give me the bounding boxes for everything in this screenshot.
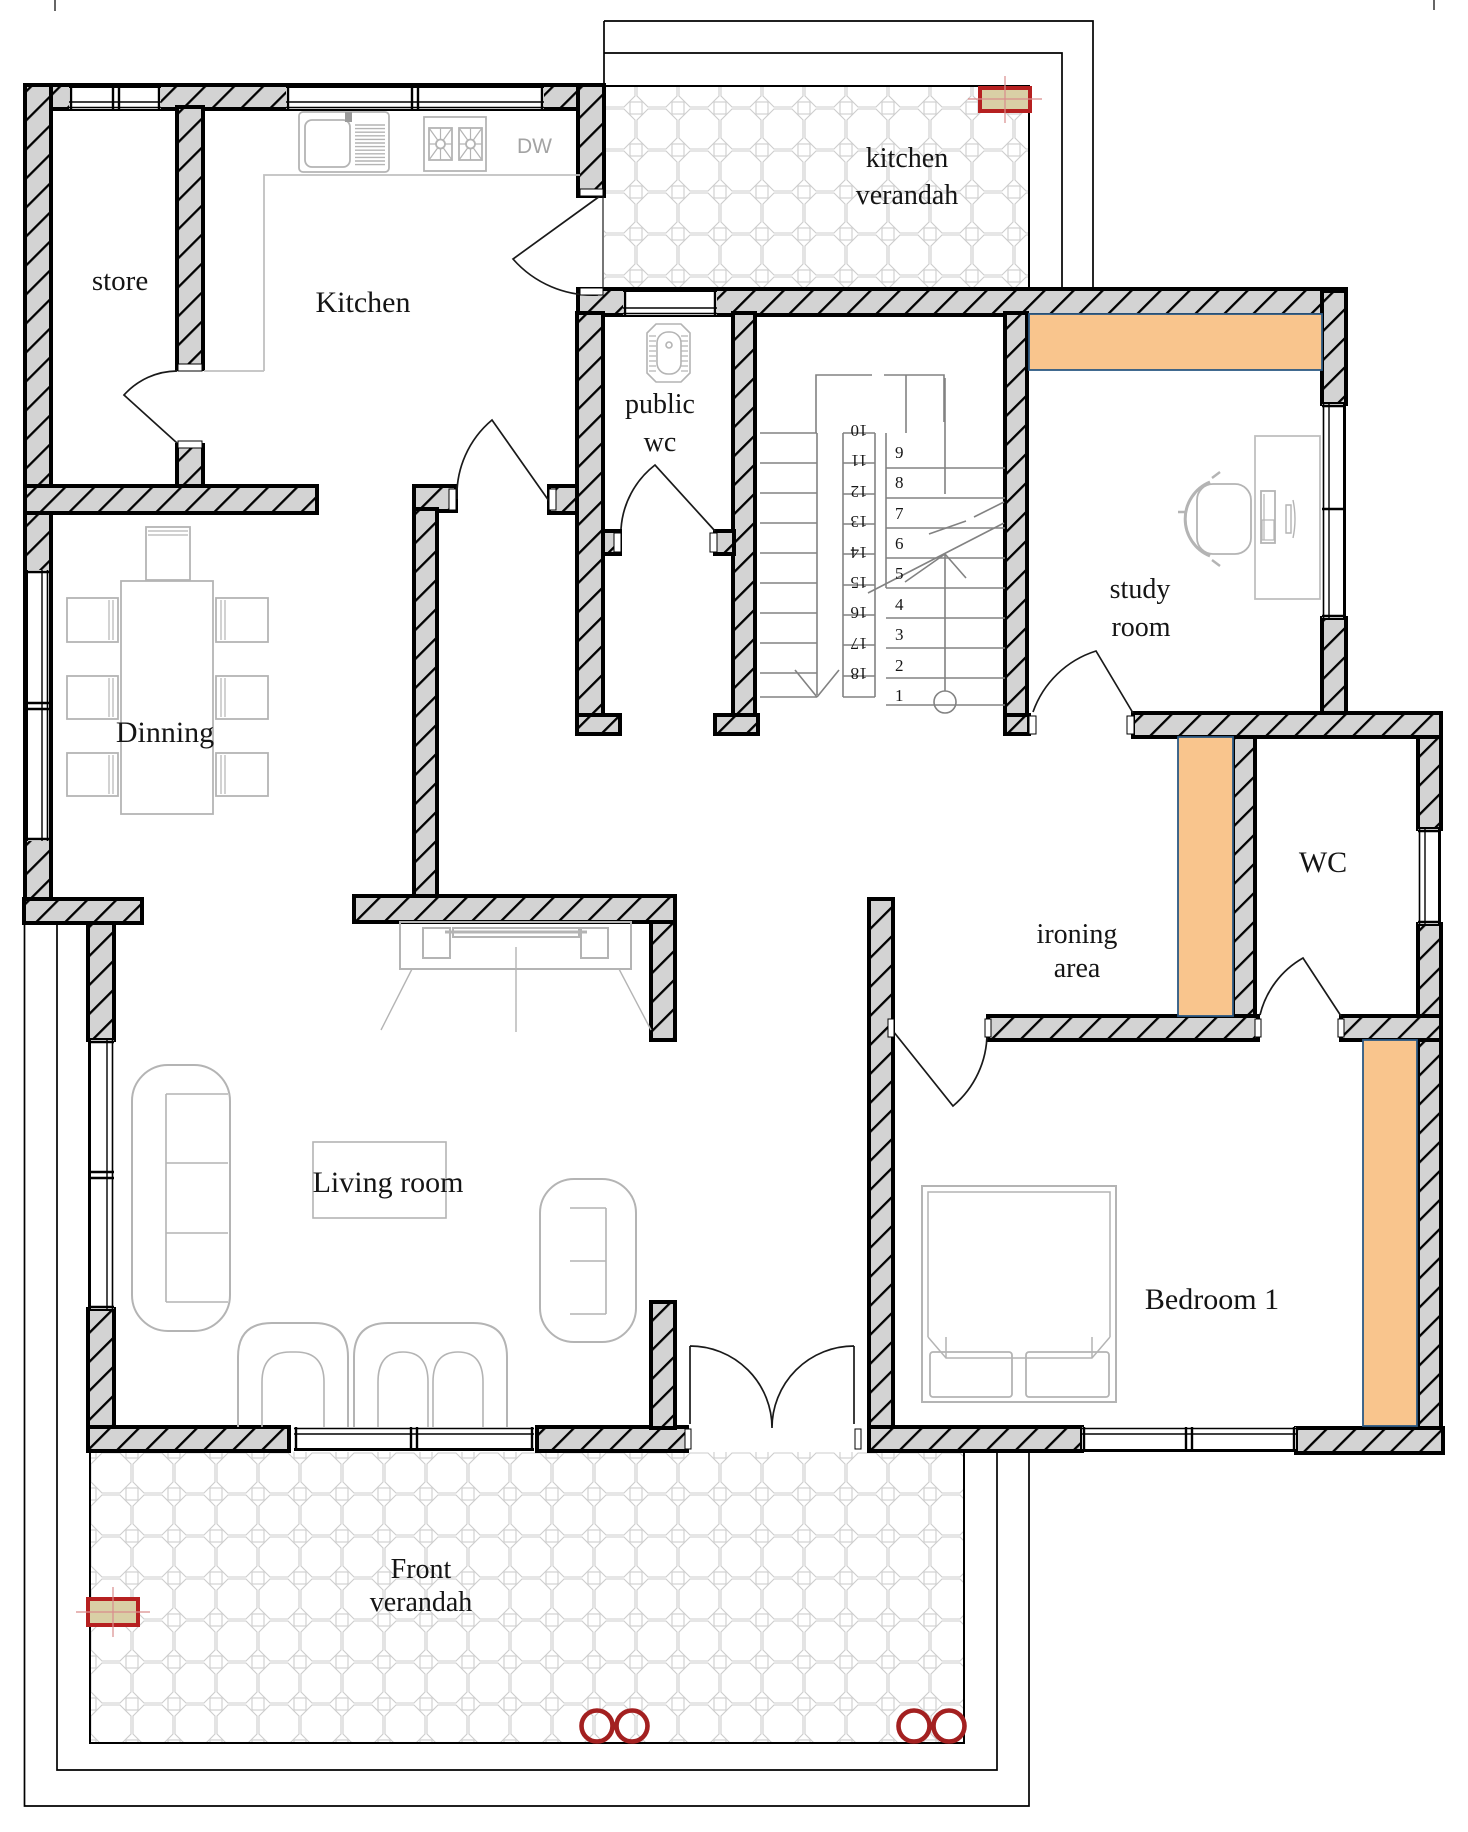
svg-text:18: 18 [851, 664, 868, 683]
svg-text:1: 1 [895, 686, 904, 705]
svg-text:8: 8 [895, 473, 904, 492]
svg-text:13: 13 [851, 512, 868, 531]
svg-text:room: room [1111, 612, 1170, 643]
svg-text:17: 17 [850, 634, 868, 653]
svg-text:12: 12 [851, 482, 868, 501]
svg-text:kitchen: kitchen [866, 143, 948, 174]
svg-text:Bedroom 1: Bedroom 1 [1145, 1283, 1279, 1316]
svg-text:6: 6 [895, 534, 904, 553]
svg-text:study: study [1110, 574, 1171, 605]
svg-text:store: store [92, 265, 148, 297]
svg-text:verandah: verandah [856, 180, 959, 211]
svg-text:4: 4 [895, 595, 904, 614]
svg-text:WC: WC [1299, 846, 1347, 879]
svg-text:16: 16 [851, 603, 868, 622]
svg-text:Kitchen: Kitchen [316, 286, 411, 319]
svg-text:11: 11 [851, 451, 867, 470]
svg-text:verandah: verandah [370, 1587, 473, 1618]
svg-text:DW: DW [517, 135, 552, 158]
svg-text:10: 10 [851, 421, 868, 440]
svg-text:5: 5 [895, 564, 904, 583]
svg-text:3: 3 [895, 625, 904, 644]
svg-text:9: 9 [895, 443, 904, 462]
svg-text:wc: wc [644, 427, 677, 458]
svg-text:area: area [1054, 953, 1101, 984]
svg-text:14: 14 [850, 543, 868, 562]
svg-text:ironing: ironing [1037, 919, 1118, 950]
svg-text:15: 15 [851, 573, 868, 592]
svg-text:7: 7 [895, 504, 904, 523]
svg-text:2: 2 [895, 656, 904, 675]
svg-text:Dinning: Dinning [116, 716, 214, 749]
svg-text:public: public [625, 389, 695, 420]
svg-text:Living room: Living room [313, 1166, 464, 1199]
svg-text:Front: Front [391, 1554, 452, 1585]
